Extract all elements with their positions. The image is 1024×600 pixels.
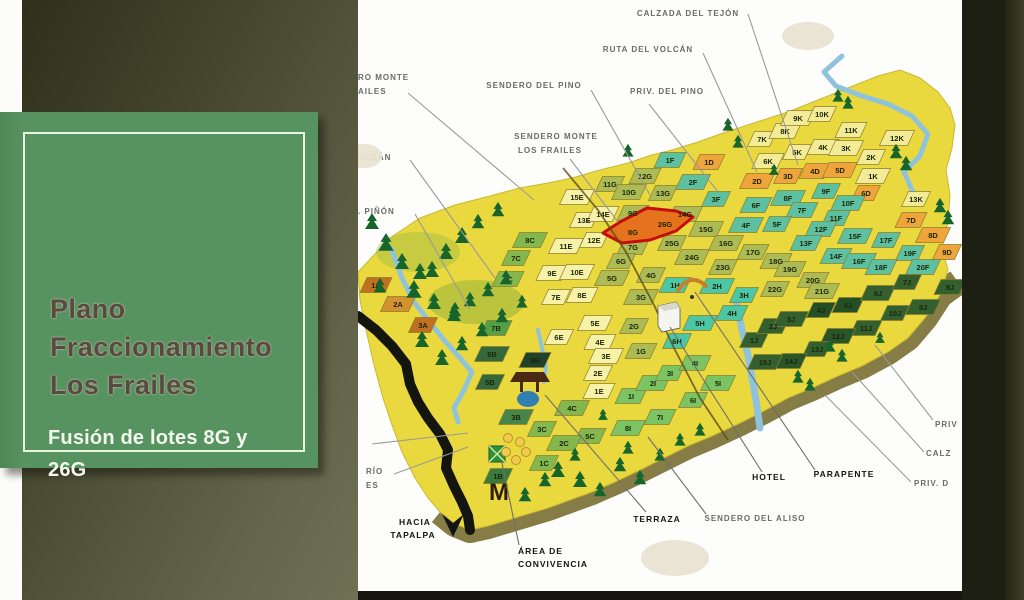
lot-label-8G: 8G [628,228,638,237]
lot-label-13E: 13E [577,216,590,225]
lot-label-2D: 2D [752,177,762,186]
lot-label-6F: 6F [752,201,761,210]
lot-label-6K: 6K [763,157,773,166]
lot-label-11F: 11F [830,214,843,223]
lot-label-25G: 25G [665,239,679,248]
lot-label-6B: 6B [487,350,497,359]
lot-label-10J: 10J [889,309,902,318]
lot-label-2F: 2F [689,178,698,187]
lot-label-4E: 4E [595,338,604,347]
lot-label-1F: 1F [666,156,675,165]
lot-label-3J: 3J [787,315,795,324]
page-title: Plano Fraccionamiento Los Frailes [50,290,272,404]
lot-label-9G: 9G [628,209,638,218]
title-line-3: Los Frailes [50,366,272,404]
lot-label-18G: 18G [769,257,783,266]
lot-label-7B: 7B [491,324,501,333]
lot-label-2C: 2C [559,439,569,448]
lot-label-13F: 13F [800,239,813,248]
lot-label-8I: 8I [625,424,631,433]
lot-label-13J: 13J [811,345,824,354]
street-label-10: RÍO [366,467,383,476]
lot-label-3K: 3K [841,144,851,153]
lot-label-2J: 2J [769,322,777,331]
lot-label-3C: 3C [537,425,547,434]
lot-label-12J: 12J [832,332,845,341]
lot-label-10E: 10E [570,268,583,277]
street-label-2: SENDERO DEL PINO [486,81,581,90]
pond-icon [517,391,539,407]
feature-label-5: ÁREA DE [518,546,563,556]
lot-label-4G: 4G [646,271,656,280]
lot-label-9J: 9J [919,303,927,312]
subtitle-line-2: 26G [48,454,248,486]
cloud-icon [782,22,834,50]
lot-label-6J: 6J [874,289,882,298]
tree-icon [622,144,633,157]
lot-label-15G: 15G [699,225,713,234]
lot-label-14G: 14G [678,210,692,219]
lot-label-1K: 1K [868,172,878,181]
lot-label-5E: 5E [590,319,599,328]
lot-label-8B: 8B [530,356,540,365]
lot-label-7J: 7J [903,278,911,287]
lot-label-8J: 8J [946,283,954,292]
lot-label-9F: 9F [822,187,831,196]
lot-label-11G: 11G [603,180,617,189]
lot-label-16F: 16F [853,257,866,266]
map-panel: 7K8K9K10K11K12K5K4K3K2K6K1K13K1D2D3D4D5D… [358,0,962,600]
lot-label-16G: 16G [719,239,733,248]
lot-label-9K: 9K [793,114,803,123]
street-label-11: ES [366,481,379,490]
lot-label-12E: 12E [587,236,600,245]
lot-label-3F: 3F [712,195,721,204]
presentation-slide: 7K8K9K10K11K12K5K4K3K2K6K1K13K1D2D3D4D5D… [0,0,1024,600]
lot-label-7K: 7K [757,135,767,144]
lot-label-2I: 2I [650,379,656,388]
lot-label-12F: 12F [815,225,828,234]
lot-label-10G: 10G [622,188,636,197]
lot-label-13K: 13K [909,195,923,204]
title-line-1: Plano [50,290,272,328]
feature-label-6: CONVIVENCIA [518,559,588,569]
lot-label-5I: 5I [715,379,721,388]
lot-label-21G: 21G [815,287,829,296]
lot-label-5B: 5B [485,378,495,387]
lot-label-11K: 11K [844,126,858,135]
street-label-7: AILES [358,87,387,96]
page-subtitle: Fusión de lotes 8G y 26G [48,422,248,486]
lot-label-4K: 4K [818,143,828,152]
lot-label-7G: 7G [628,243,638,252]
lot-label-11J: 11J [860,324,872,333]
feature-label-1: PARAPENTE [814,469,875,479]
lot-label-17G: 17G [746,248,760,257]
lot-label-4J: 4J [817,306,825,315]
lot-label-11E: 11E [560,242,573,251]
lot-label-5C: 5C [585,432,595,441]
lot-label-3H: 3H [739,291,749,300]
street-label-6: RO MONTE [358,73,409,82]
tree-icon [722,118,733,131]
lot-label-7C: 7C [511,254,521,263]
feature-label-2: TERRAZA [633,514,681,524]
lot-label-5G: 5G [607,274,617,283]
lot-label-22G: 22G [768,285,782,294]
lot-label-3D: 3D [783,172,793,181]
lot-label-26G: 26G [658,220,672,229]
street-label-4: SENDERO MONTE [514,132,598,141]
lot-label-15F: 15F [849,232,862,241]
lot-label-3G: 3G [636,293,646,302]
lot-label-1I: 1I [628,392,634,401]
title-line-2: Fraccionamiento [50,328,272,366]
lot-label-15E: 15E [570,193,583,202]
lot-label-5J: 5J [844,301,852,310]
lot-label-3A: 3A [418,321,428,330]
feature-label-4: TAPALPA [390,530,435,540]
street-label-15: PRIV. D [914,479,949,488]
lot-label-2A: 2A [393,300,403,309]
lot-label-1C: 1C [539,459,549,468]
street-label-5: LOS FRAILES [518,146,582,155]
lot-label-8C: 8C [525,236,535,245]
subdivision-map: 7K8K9K10K11K12K5K4K3K2K6K1K13K1D2D3D4D5D… [358,0,962,600]
lot-label-3B: 3B [511,413,521,422]
hotel-icon [658,302,680,332]
lot-label-5F: 5F [773,220,782,229]
feature-label-0: HOTEL [752,472,786,482]
lot-label-3E: 3E [601,352,610,361]
lot-label-10K: 10K [815,110,829,119]
lot-label-10F: 10F [842,199,855,208]
slide-right-edge [1005,0,1024,600]
lot-label-4H: 4H [727,309,737,318]
lot-label-7F: 7F [798,206,807,215]
lot-label-2K: 2K [866,153,876,162]
feature-label-3: HACIA [399,517,431,527]
lot-label-20F: 20F [917,263,930,272]
lot-label-8D: 8D [928,231,938,240]
lot-label-9D: 9D [942,248,952,257]
lot-label-9E: 9E [547,269,556,278]
lot-label-20G: 20G [806,276,820,285]
lot-label-6D: 6D [861,189,871,198]
lot-label-15J: 15J [759,358,772,367]
lot-label-5H: 5H [695,319,705,328]
lot-label-1D: 1D [704,158,714,167]
lot-label-6G: 6G [616,257,626,266]
street-label-13: PRIV [935,420,958,429]
lot-label-24G: 24G [685,253,699,262]
lot-label-17F: 17F [880,236,893,245]
map-bottom-border [358,591,962,600]
slide-right-dark-strip [962,0,1005,600]
street-label-1: RUTA DEL VOLCÁN [603,45,693,54]
lot-label-8F: 8F [784,194,793,203]
lot-label-14F: 14F [830,252,843,261]
tree-icon [378,233,393,251]
lot-label-2H: 2H [712,282,722,291]
lot-label-3I: 3I [667,369,673,378]
lot-label-14J: 14J [785,357,798,366]
street-label-3: PRIV. DEL PINO [630,87,704,96]
street-label-0: CALZADA DEL TEJÓN [637,9,739,18]
lot-label-6I: 6I [690,396,696,405]
lot-label-1G: 1G [636,347,646,356]
cloud-icon [641,540,709,576]
lot-label-1E: 1E [594,387,603,396]
street-label-14: CALZ [926,449,951,458]
lot-label-1J: 1J [750,336,758,345]
cloud-icon [358,144,382,168]
lot-label-19G: 19G [783,265,797,274]
lot-label-6E: 6E [554,333,563,342]
street-callout-line [852,372,924,452]
lot-label-12K: 12K [890,134,904,143]
lot-label-19F: 19F [904,249,917,258]
lot-label-4F: 4F [742,221,751,230]
lot-label-18F: 18F [875,263,888,272]
subtitle-line-1: Fusión de lotes 8G y [48,422,248,454]
street-label-9: . PIÑÓN [358,207,395,216]
lot-label-2E: 2E [593,369,602,378]
lot-label-2G: 2G [629,322,639,331]
lot-label-13G: 13G [656,189,670,198]
title-box: Plano Fraccionamiento Los Frailes Fusión… [0,112,318,468]
lot-label-7I: 7I [657,413,663,422]
lot-label-7D: 7D [906,216,916,225]
lot-label-4C: 4C [567,404,577,413]
lot-label-4D: 4D [810,167,820,176]
lot-label-7E: 7E [551,293,560,302]
street-label-12: SENDERO DEL ALISO [704,514,805,523]
lot-label-5D: 5D [835,166,845,175]
lot-label-8E: 8E [577,291,586,300]
lot-label-23G: 23G [716,263,730,272]
